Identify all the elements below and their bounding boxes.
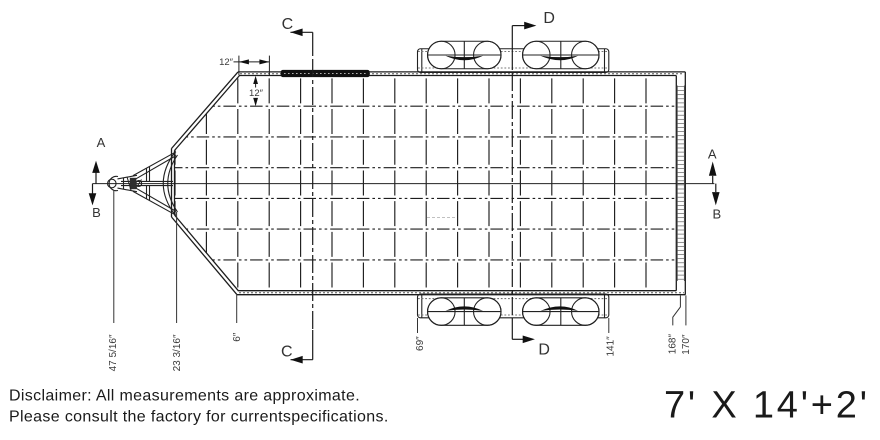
svg-text:69″: 69″ — [415, 336, 426, 351]
svg-text:B: B — [712, 207, 721, 222]
svg-text:D: D — [538, 342, 550, 359]
svg-text:12″: 12″ — [249, 88, 264, 99]
svg-text:Disclaimer: All measurements a: Disclaimer: All measurements are approxi… — [9, 388, 360, 405]
svg-text:170″: 170″ — [681, 334, 692, 355]
svg-text:47 5/16″: 47 5/16″ — [108, 334, 119, 371]
svg-text:141″: 141″ — [605, 336, 616, 357]
svg-text:23 3/16″: 23 3/16″ — [172, 334, 183, 371]
svg-text:A: A — [708, 146, 717, 161]
svg-text:Please consult the factory for: Please consult the factory for currentsp… — [9, 409, 389, 426]
svg-text:D: D — [543, 10, 555, 27]
svg-text:C: C — [282, 16, 294, 33]
svg-text:B: B — [92, 205, 101, 220]
svg-text:7' X 14'+2': 7' X 14'+2' — [664, 385, 870, 427]
svg-text:6″: 6″ — [232, 332, 243, 342]
svg-text:C: C — [281, 344, 293, 361]
svg-text:168″: 168″ — [667, 334, 678, 355]
svg-text:12″: 12″ — [219, 57, 234, 68]
svg-text:A: A — [97, 135, 106, 150]
